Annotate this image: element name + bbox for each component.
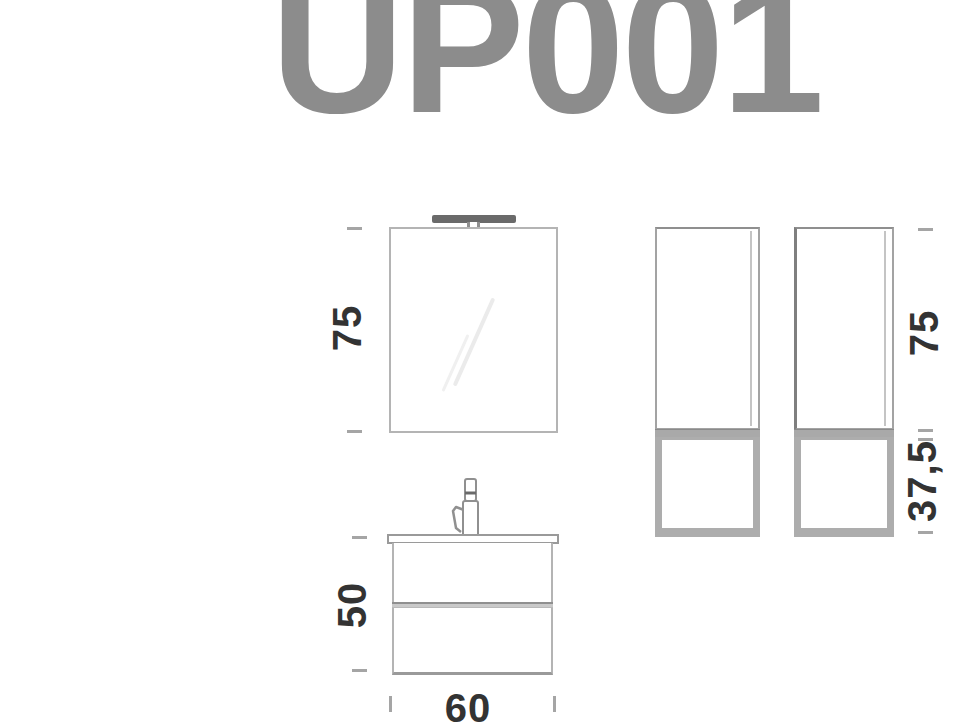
dim-tick [347,430,362,433]
vanity-width-dimension: 60 [445,686,492,728]
technical-drawing-canvas: UP001 75 50 60 75 37,5 [0,0,970,728]
column-b-open-shelf [794,437,894,537]
mirror-height-dimension: 75 [325,305,370,352]
column-upper-height-dimension: 75 [902,310,947,357]
dim-tick [918,531,933,534]
dim-tick [352,669,367,672]
dim-tick [918,228,933,231]
dim-tick [389,696,392,712]
column-b-divider-band [794,429,894,437]
dim-tick [553,696,556,712]
mirror-outline [389,227,558,433]
column-b-shelf-opening [801,440,887,528]
dim-tick [347,227,362,230]
column-b-upper-outline [794,227,894,430]
column-a-door-gap-line [750,231,752,426]
column-b-door-gap-line [884,231,886,426]
column-a-shelf-opening [662,440,753,528]
vanity-cabinet-outline [392,543,553,675]
faucet-graphic [444,476,488,538]
vanity-drawer-divider [392,602,553,608]
mirror-reflection-stroke [453,297,496,386]
column-a-open-shelf [655,437,760,537]
dim-tick [918,429,933,432]
column-a-upper-outline [655,227,760,430]
vanity-height-dimension: 50 [330,582,375,629]
column-lower-height-dimension: 37,5 [900,440,945,522]
column-a-divider-band [655,429,760,437]
product-code-title: UP001 [271,0,822,141]
dim-tick [352,536,367,539]
